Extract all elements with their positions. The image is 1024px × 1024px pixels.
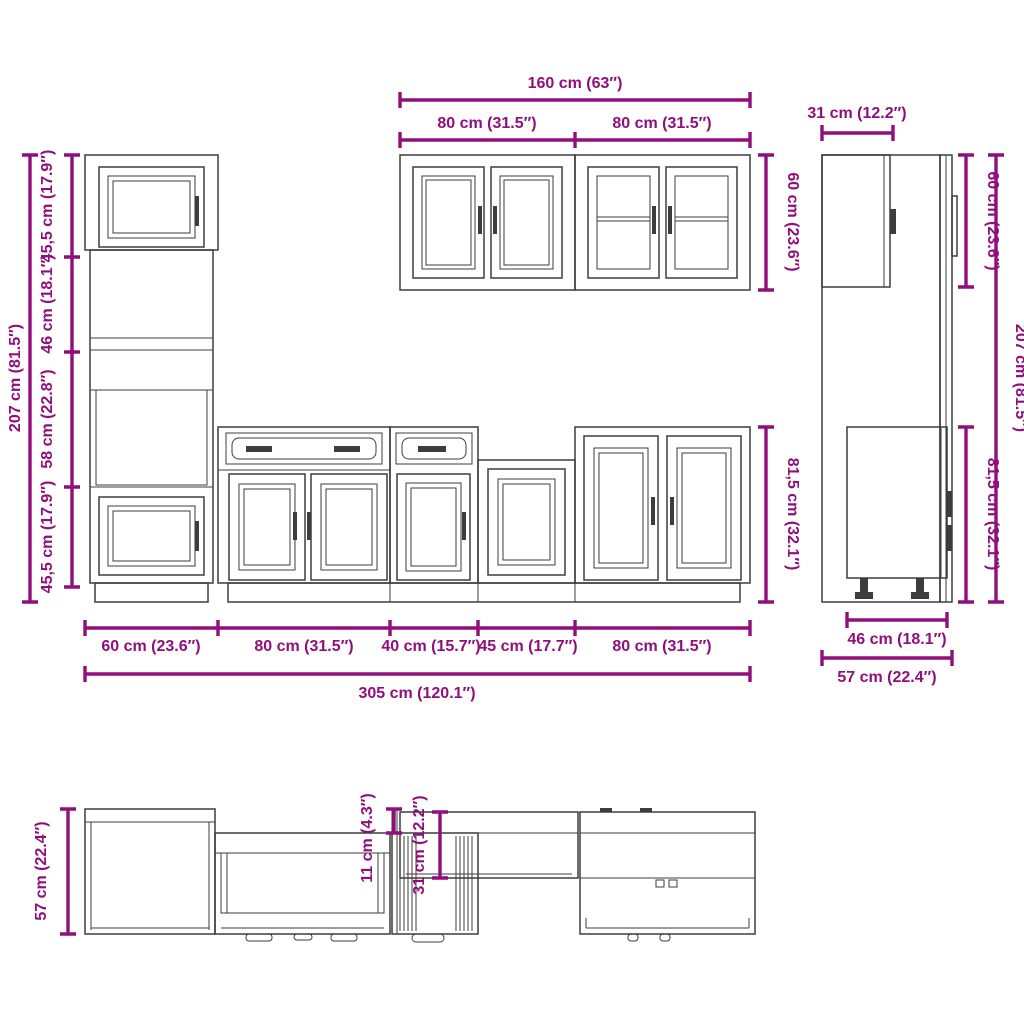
adjustable-foot (855, 592, 873, 599)
wall-cabinet-side (822, 155, 890, 287)
dim-front-overall-height: 207 cm (81.5″) (7, 324, 24, 432)
door-handle (195, 196, 199, 226)
dim-wall-height: 60 cm (23.6″) (784, 172, 801, 271)
door-handle (478, 206, 482, 234)
door-handle (947, 491, 952, 517)
drawer-handle (334, 446, 360, 452)
dim-side-base-height: 81,5 cm (32.1″) (984, 458, 1001, 571)
dim-width-unit-5: 80 cm (31.5″) (612, 638, 711, 655)
drawer-handle (246, 446, 272, 452)
dim-total-width: 305 cm (120.1″) (358, 685, 475, 702)
dim-wall-total-width: 160 cm (63″) (528, 75, 623, 92)
plinth (95, 583, 208, 602)
dim-width-tall-unit: 60 cm (23.6″) (101, 638, 200, 655)
door-handle (307, 512, 311, 540)
dim-front-segment-top-door: 45,5 cm (17.9″) (39, 150, 56, 263)
kitchen-cabinet-dimension-diagram: 207 cm (81.5″) 45,5 cm (17.9″) 46 cm (18… (0, 0, 1024, 1024)
adjustable-foot (916, 578, 924, 592)
dim-front-segment-bottom-door: 45,5 cm (17.9″) (39, 481, 56, 594)
door-handle (670, 497, 674, 525)
dim-wall-left-width: 80 cm (31.5″) (437, 115, 536, 132)
dim-front-segment-oven: 58 cm (22.8″) (39, 369, 56, 468)
adjustable-foot (911, 592, 929, 599)
base-cabinets-front (218, 427, 750, 602)
door-handle (462, 512, 466, 540)
dimension-labels: 207 cm (81.5″) 45,5 cm (17.9″) 46 cm (18… (7, 75, 1024, 921)
wall-cabinets-front (400, 155, 750, 290)
dim-plan-shallow-depth: 31 cm (12.2″) (411, 795, 428, 894)
plinth (228, 583, 740, 602)
dimension-lines (22, 92, 1004, 934)
diagram-canvas: 207 cm (81.5″) 45,5 cm (17.9″) 46 cm (18… (0, 0, 1024, 1024)
dim-side-wall-height: 60 cm (23.6″) (984, 171, 1001, 270)
side-view (822, 155, 957, 602)
door-handle (493, 206, 497, 234)
door-handle (195, 521, 199, 551)
dim-side-overall-height: 207 cm (81.5″) (1012, 324, 1024, 432)
door-handle (890, 209, 896, 234)
dim-wall-right-width: 80 cm (31.5″) (612, 115, 711, 132)
dim-plan-depth-difference: 11 cm (4.3″) (359, 793, 376, 883)
glass-door-pane (675, 176, 728, 269)
dim-base-height: 81,5 cm (32.1″) (784, 458, 801, 571)
door-handle (947, 525, 952, 551)
door-handle (652, 206, 656, 234)
dim-front-segment-open: 46 cm (18.1″) (39, 254, 56, 353)
base-cabinet-side (847, 427, 947, 578)
dim-plan-total-depth: 57 cm (22.4″) (33, 821, 50, 920)
adjustable-foot (860, 578, 868, 592)
door-handle (668, 206, 672, 234)
door-edge-profile (952, 196, 957, 256)
dim-side-base-depth: 46 cm (18.1″) (847, 631, 946, 648)
door-handle (293, 512, 297, 540)
glass-door-pane (597, 176, 650, 269)
dim-side-wall-depth: 31 cm (12.2″) (807, 105, 906, 122)
tall-cabinet-front (85, 155, 218, 602)
door-handle (651, 497, 655, 525)
dim-width-unit-2: 80 cm (31.5″) (254, 638, 353, 655)
drawer-handle (418, 446, 446, 452)
dim-width-unit-3: 40 cm (15.7″) (381, 638, 480, 655)
dim-width-unit-4: 45 cm (17.7″) (478, 638, 577, 655)
dim-side-total-depth: 57 cm (22.4″) (837, 669, 936, 686)
